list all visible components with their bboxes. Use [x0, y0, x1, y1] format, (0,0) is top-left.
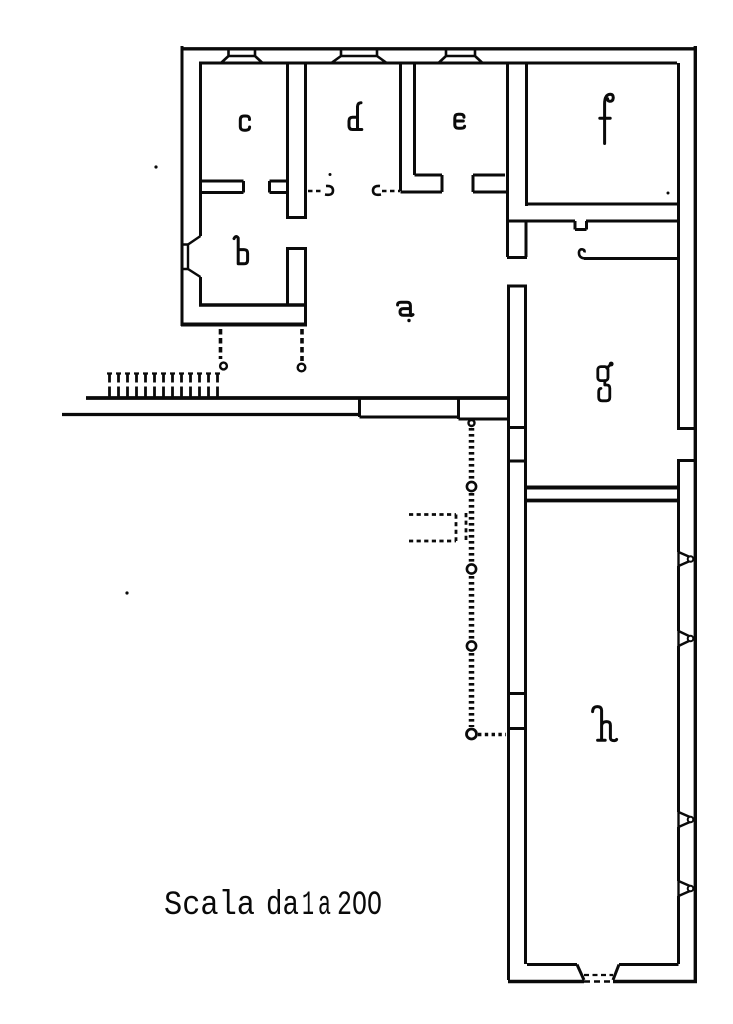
svg-text:1: 1 [302, 887, 314, 925]
svg-text:2OO: 2OO [337, 887, 382, 925]
svg-text:da: da [266, 887, 299, 925]
svg-text:a: a [318, 887, 331, 925]
svg-text:Scala: Scala [164, 887, 255, 925]
